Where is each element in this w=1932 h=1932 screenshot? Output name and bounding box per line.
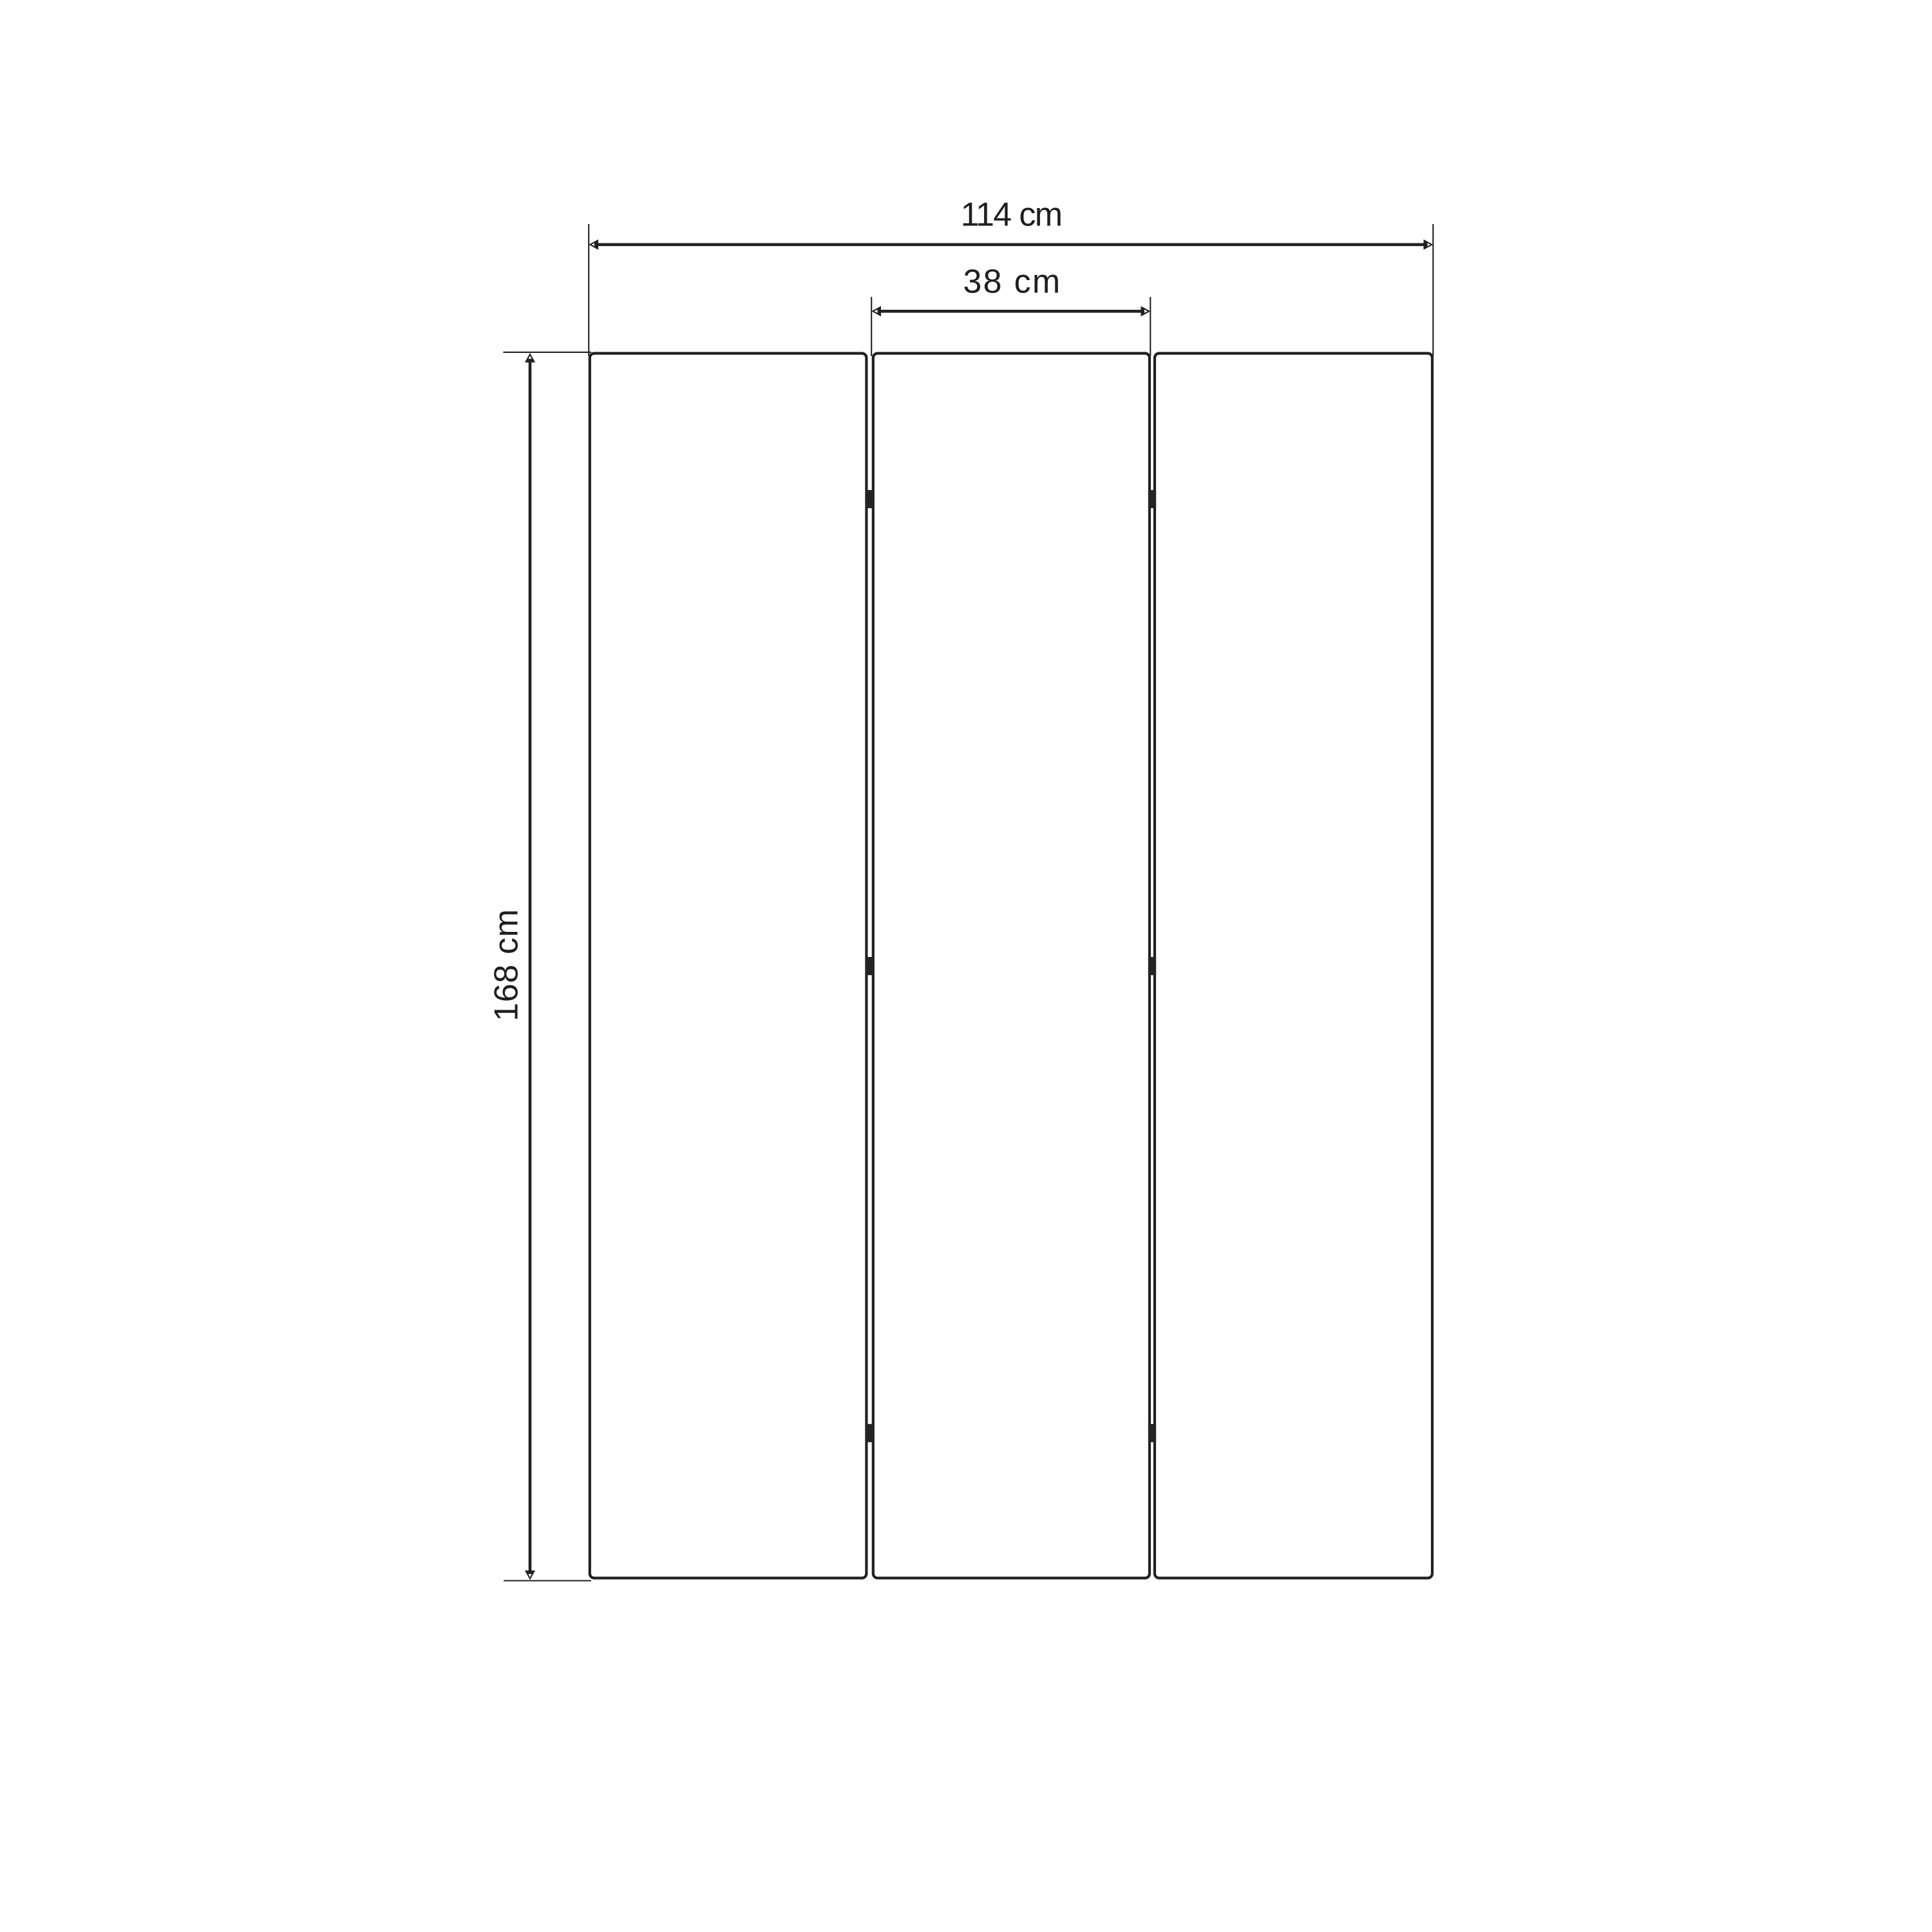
svg-text:168 cm: 168 cm xyxy=(488,909,526,1021)
svg-text:114 cm: 114 cm xyxy=(961,196,1062,234)
svg-text:38 cm: 38 cm xyxy=(963,263,1061,301)
